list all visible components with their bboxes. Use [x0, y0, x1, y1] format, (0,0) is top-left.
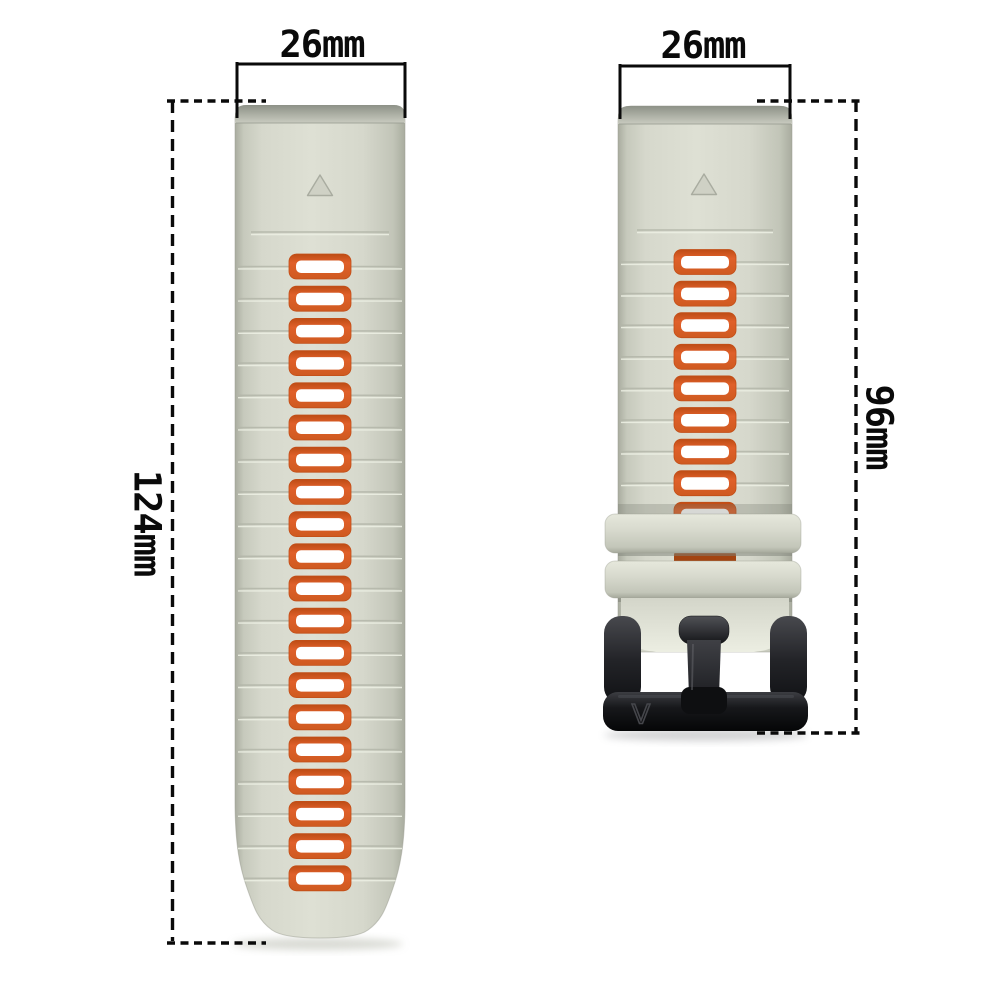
- keeper-top-shading: [618, 504, 792, 515]
- strap-slot-inner: [681, 477, 729, 490]
- strap-slot-inner: [296, 261, 344, 274]
- buckle-prong: [679, 616, 729, 714]
- right-length-label: 96mm: [858, 384, 901, 469]
- right-strap-lug-cap: [618, 106, 792, 124]
- left-strap-lug-cap: [235, 105, 405, 123]
- strap-slot-inner: [296, 615, 344, 628]
- strap-slot-inner: [296, 679, 344, 692]
- keeper-loop-sliding: [605, 561, 801, 598]
- strap-slot-inner: [296, 454, 344, 467]
- strap-slot-inner: [681, 382, 729, 395]
- left-strap: [233, 105, 405, 950]
- strap-slot-inner: [681, 414, 729, 427]
- strap-slot-inner: [296, 744, 344, 757]
- left-strap-shadow: [233, 938, 403, 950]
- strap-slot-inner: [296, 776, 344, 789]
- right-strap: V: [603, 106, 808, 741]
- strap-slot-inner: [296, 711, 344, 724]
- strap-slot-inner: [296, 422, 344, 435]
- buckle-logo: V: [632, 700, 651, 731]
- strap-dimension-diagram: V 26mm 26mm 124mm 96mm: [0, 0, 1000, 1000]
- strap-slot-inner: [681, 256, 729, 269]
- strap-slot-inner: [296, 389, 344, 402]
- strap-slot-inner: [296, 647, 344, 660]
- strap-slot-inner: [296, 583, 344, 596]
- left-width-label: 26mm: [279, 23, 364, 66]
- strap-slot-inner: [296, 872, 344, 885]
- strap-slot-inner: [296, 486, 344, 499]
- buckle: V: [603, 616, 808, 741]
- strap-slot-inner: [681, 288, 729, 301]
- strap-slot-inner: [681, 446, 729, 459]
- strap-slot-inner: [296, 808, 344, 821]
- product-dimension-image: V 26mm 26mm 124mm 96mm: [0, 0, 1000, 1000]
- keeper-loop-fixed: [605, 514, 801, 553]
- left-length-label: 124mm: [126, 470, 169, 576]
- strap-slot-inner: [296, 357, 344, 370]
- strap-slot-inner: [296, 840, 344, 853]
- strap-slot-inner: [296, 550, 344, 563]
- right-width-label: 26mm: [660, 24, 745, 67]
- buckle-arm-left: [604, 616, 641, 704]
- strap-slot-inner: [681, 319, 729, 332]
- strap-slot-inner: [296, 293, 344, 306]
- buckle-arm-right: [770, 616, 807, 704]
- right-strap-slots: [674, 250, 736, 528]
- strap-slot-inner: [296, 518, 344, 531]
- strap-slot-inner: [681, 351, 729, 364]
- strap-slot-inner: [296, 325, 344, 338]
